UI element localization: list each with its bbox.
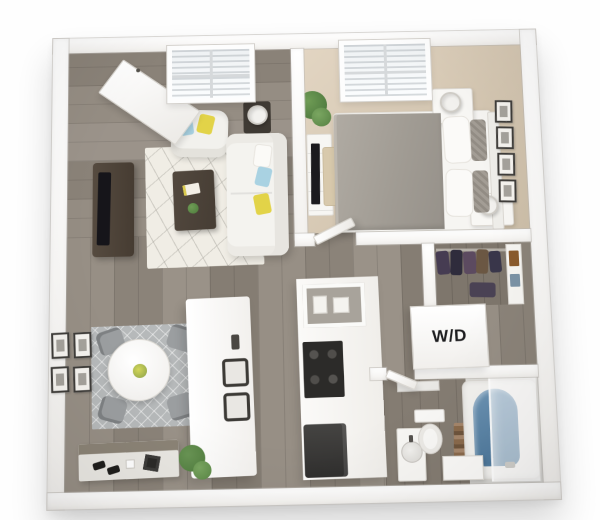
apartment-floorplan: W/D [47,29,561,509]
washer-dryer-closet: W/D [410,303,490,370]
floorplan-scene: W/D [0,0,600,520]
bedroom-tv [311,143,320,204]
hanging-clothes [476,249,489,274]
sofa [226,133,289,257]
hanging-clothes [488,251,502,273]
hanging-clothes [470,282,496,297]
range-stove [302,341,345,399]
sideboard-decor [143,454,161,472]
entry-door-handle [136,69,140,73]
living-room-window [167,44,255,103]
plant-leaf [312,107,332,126]
shelf-box [509,250,520,266]
bed-pillow-accent [470,119,488,161]
wall-frame [51,366,70,393]
wall-frame [73,332,92,359]
shelf-box [510,274,521,287]
wall-bathroom-top-stub [370,368,387,380]
coffee-table-plant [187,203,198,214]
bed-duvet [334,113,445,230]
refrigerator [303,423,348,478]
wall-frame [73,366,92,393]
kitchen-sink-basin [222,358,249,387]
kitchen-sink-basin [223,392,250,422]
coffee-table [172,169,216,231]
plant-leaf [193,461,212,480]
bed-pillow-white [445,169,473,217]
sideboard-decor [126,459,135,469]
wall-frame [496,126,514,149]
sideboard-decor [107,465,121,476]
coffee-table-books [182,183,200,196]
wall-frame [495,100,513,123]
sofa-pillow-white [252,144,272,169]
hanging-clothes [463,251,478,274]
wall-frame [499,179,517,202]
pantry-item [333,297,350,313]
pantry-item [313,296,328,314]
bedroom-window [339,39,432,102]
closet-shelf [505,244,524,305]
sink-faucet [409,435,413,442]
hanging-clothes [450,250,462,276]
bed-pillow-white [442,115,473,164]
tv-screen [97,172,112,245]
toilet-tank [414,409,445,423]
sideboard-decor [92,460,106,471]
wall-frame [497,153,515,176]
sideboard [78,440,179,482]
hanging-clothes [435,251,450,275]
washer-dryer-label: W/D [432,326,468,347]
bathroom-cabinet [442,455,484,481]
sofa-pillow-blue [254,166,273,188]
shower-glass-panel [488,377,541,482]
bed-pillow-accent [472,170,490,212]
wall-closet-left [422,243,436,306]
wall-bedroom-bottom-stub [295,233,315,246]
sofa-pillow-yellow [253,193,272,216]
pantry-cabinet [302,283,366,329]
kitchen-faucet [231,334,240,349]
wall-frame [51,332,70,359]
armchair-pillow-yellow [196,113,216,135]
table-centerpiece [133,364,147,378]
dining-plant [179,444,216,486]
